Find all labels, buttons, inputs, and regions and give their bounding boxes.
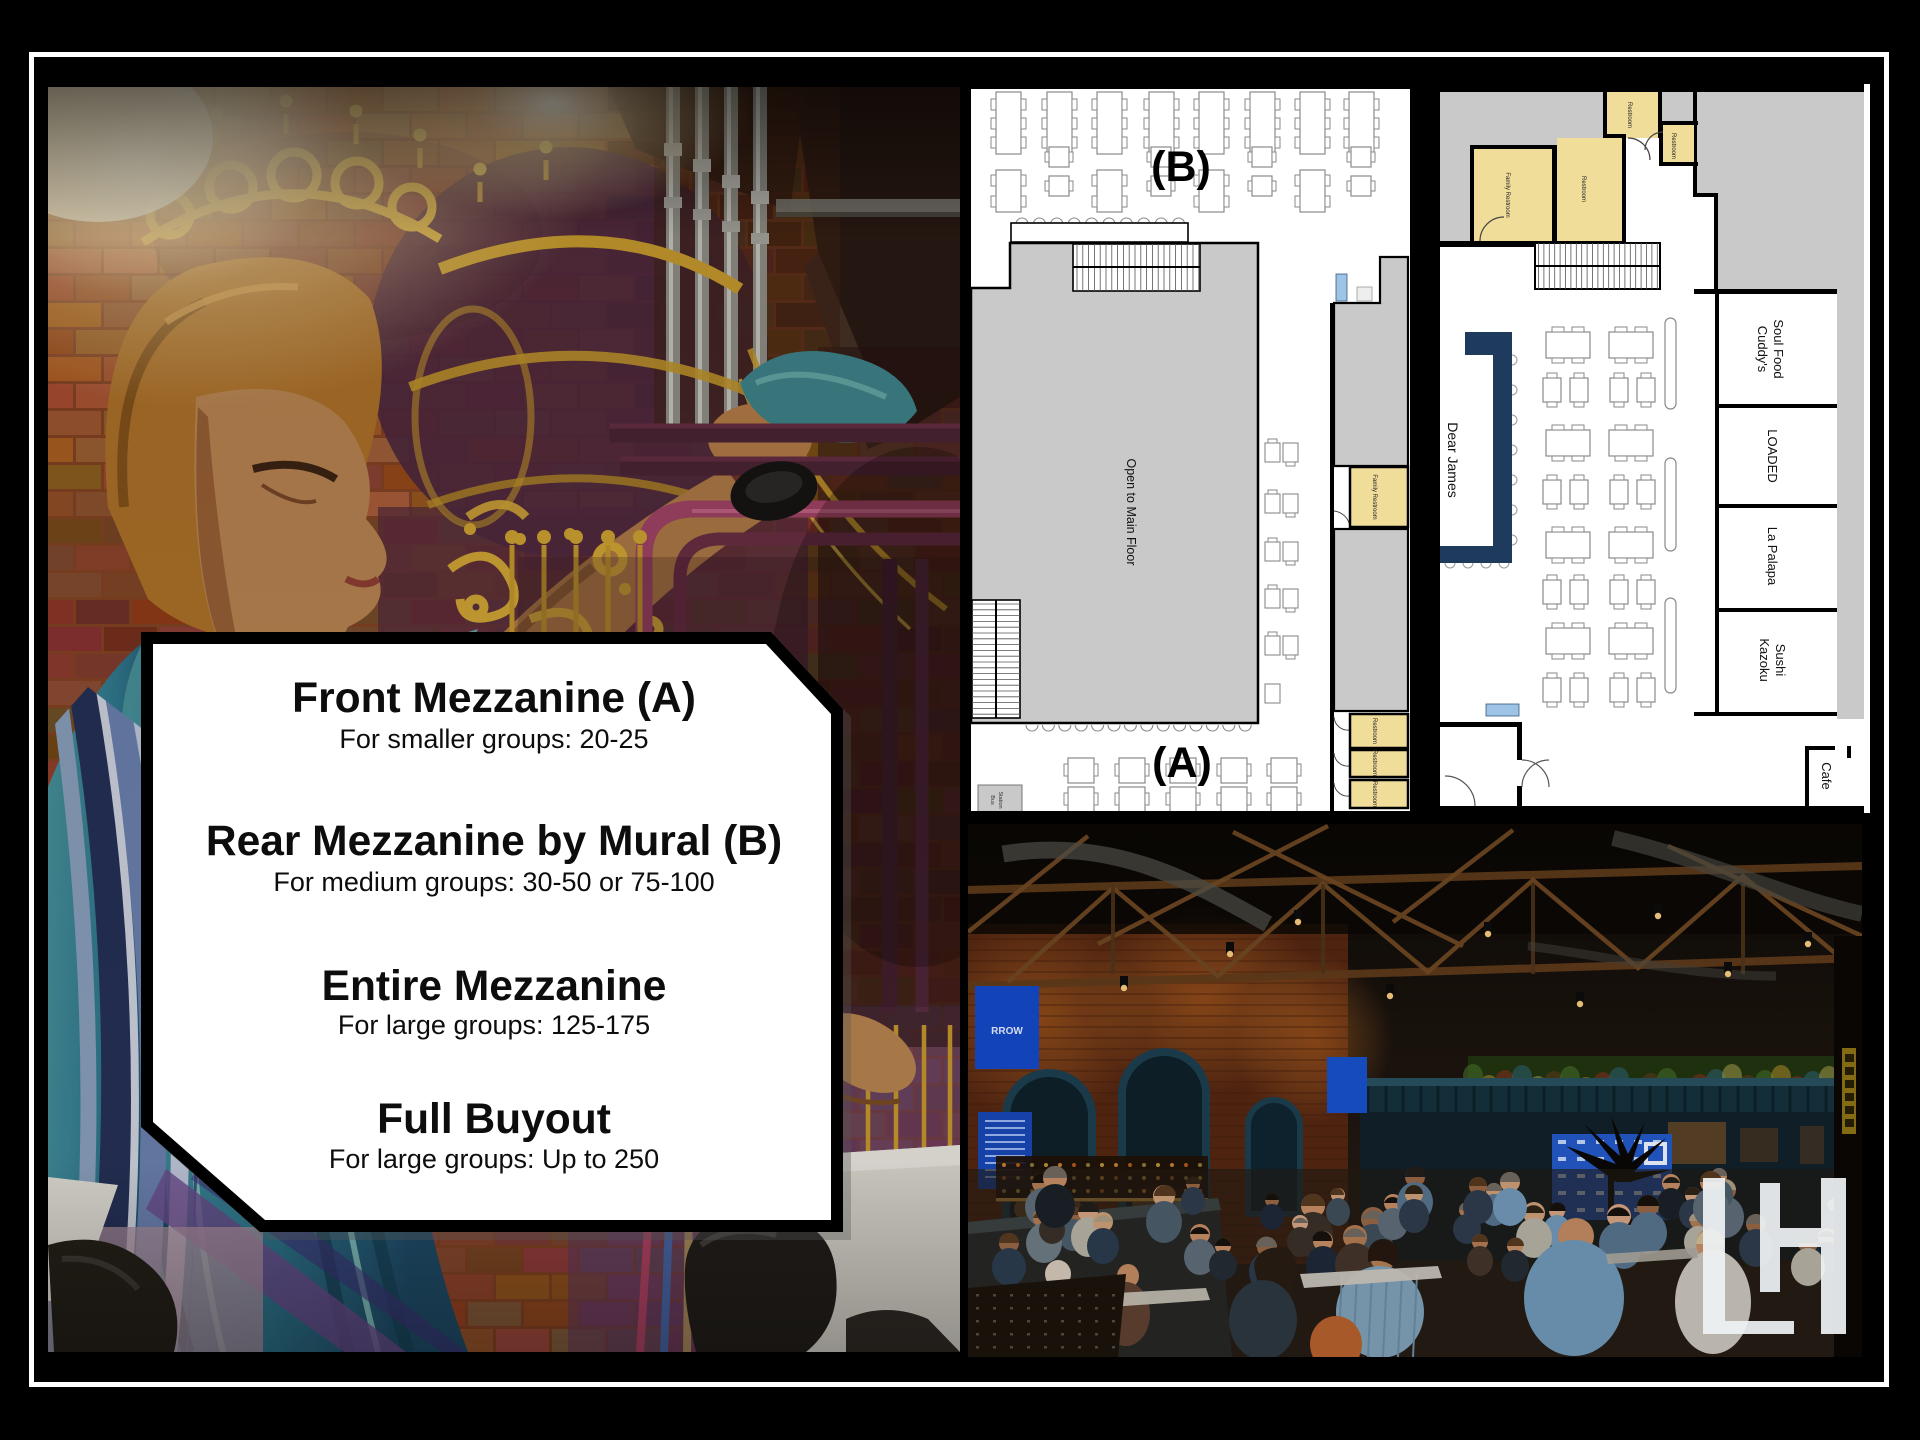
svg-text:Sushi: Sushi xyxy=(1773,644,1788,677)
svg-text:(A): (A) xyxy=(1152,739,1212,787)
svg-text:Open to Main Floor: Open to Main Floor xyxy=(1124,459,1138,566)
svg-text:Restroom: Restroom xyxy=(1626,102,1632,128)
svg-text:Full Buyout: Full Buyout xyxy=(377,1096,611,1143)
svg-text:Restroom: Restroom xyxy=(1371,718,1377,744)
svg-text:For large groups: Up to 250: For large groups: Up to 250 xyxy=(329,1144,659,1174)
svg-text:Family Restroom: Family Restroom xyxy=(1504,172,1510,217)
svg-text:(B): (B) xyxy=(1151,143,1211,191)
svg-text:La Palapa: La Palapa xyxy=(1765,527,1780,586)
svg-text:Soul Food: Soul Food xyxy=(1771,319,1786,378)
svg-text:Cuddy's: Cuddy's xyxy=(1755,326,1770,373)
svg-text:Rear Mezzanine by Mural (B): Rear Mezzanine by Mural (B) xyxy=(206,818,782,865)
svg-text:Restroom: Restroom xyxy=(1371,781,1377,807)
svg-text:Cafe: Cafe xyxy=(1819,762,1834,789)
svg-text:Front Mezzanine (A): Front Mezzanine (A) xyxy=(292,675,696,722)
svg-text:For medium groups: 30-50 or 75: For medium groups: 30-50 or 75-100 xyxy=(273,867,714,897)
svg-text:Dear James: Dear James xyxy=(1445,422,1461,497)
svg-text:For smaller groups: 20-25: For smaller groups: 20-25 xyxy=(339,724,648,754)
svg-text:Entire Mezzanine: Entire Mezzanine xyxy=(322,963,667,1010)
svg-text:Bus: Bus xyxy=(989,795,995,805)
svg-text:Restroom: Restroom xyxy=(1670,133,1676,159)
svg-text:Kazoku: Kazoku xyxy=(1757,638,1772,681)
svg-text:Station: Station xyxy=(997,791,1003,808)
svg-text:LOADED: LOADED xyxy=(1765,429,1780,482)
svg-text:Restroom: Restroom xyxy=(1371,750,1377,776)
svg-text:Restroom: Restroom xyxy=(1580,176,1586,202)
svg-text:Family Restroom: Family Restroom xyxy=(1371,474,1377,519)
svg-text:For large groups: 125-175: For large groups: 125-175 xyxy=(338,1010,650,1040)
